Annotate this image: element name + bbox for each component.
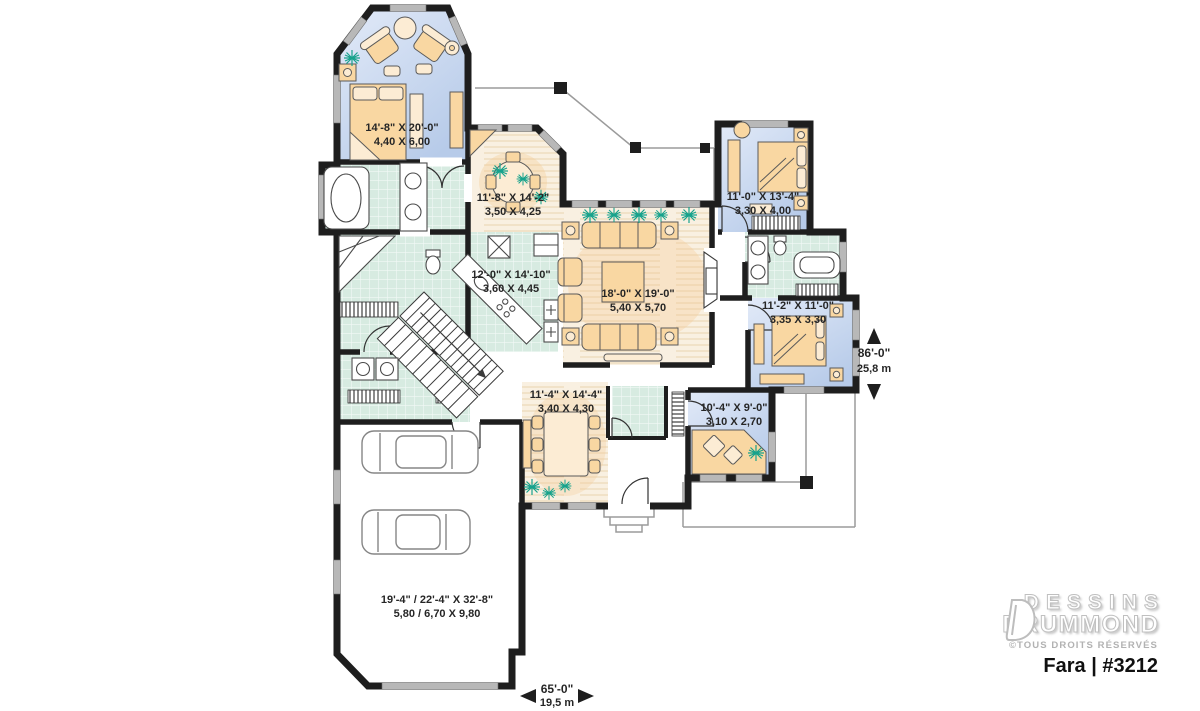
foyer-closet-floor [612, 386, 666, 438]
master-bedroom-dims-imperial: 14'-8" X 20'-0" [365, 122, 438, 134]
fireplace-icon [704, 248, 720, 312]
width-imperial: 65'-0" [541, 682, 574, 696]
breakfast-nook-dims-metric: 3,50 X 4,25 [485, 206, 541, 218]
office-dims-metric: 3,10 X 2,70 [706, 416, 762, 428]
brand-block: DESSINS DRUMMOND ©TOUS DROITS RÉSERVÉS F… [1002, 592, 1158, 678]
plan-model-number: Fara | #3212 [1002, 655, 1158, 678]
office-dims-imperial: 10'-4" X 9'-0" [700, 402, 767, 414]
garage-dims-imperial: 19'-4" / 22'-4" X 32'-8" [381, 594, 493, 606]
terrace-column [700, 143, 710, 153]
width-dimension: 65'-0" 19,5 m [520, 682, 594, 709]
living-room-dims-imperial: 18'-0" X 19'-0" [601, 288, 674, 300]
floor-plan-sheet: 14'-8" X 20'-0" 4,40 X 6,00 11'-8" X 14'… [0, 0, 1200, 711]
width-metric: 19,5 m [540, 697, 574, 709]
depth-dimension: 86'-0" 25,8 m [857, 328, 891, 400]
kitchen-dims-metric: 3,60 X 4,45 [483, 283, 539, 295]
drummond-d-logo-icon [1002, 592, 1038, 646]
arrow-up-icon [867, 328, 881, 344]
terrace-column [630, 142, 641, 153]
master-bedroom-dims-metric: 4,40 X 6,00 [374, 136, 430, 148]
depth-imperial: 86'-0" [858, 346, 891, 360]
car-icons [362, 431, 478, 554]
depth-metric: 25,8 m [857, 363, 891, 375]
bedroom2-dims-metric: 3,30 X 4,00 [735, 205, 791, 217]
porch-column [800, 476, 813, 489]
bedroom3-dims-imperial: 11'-2" X 11'-0" [762, 300, 834, 312]
kitchen-dims-imperial: 12'-0" X 14'-10" [471, 269, 550, 281]
breakfast-nook-dims-imperial: 11'-8" X 14'-2" [477, 192, 550, 204]
arrow-left-icon [520, 689, 536, 703]
bedroom2-dims-imperial: 11'-0" X 13'-4" [727, 191, 800, 203]
terrace-column [554, 82, 567, 94]
living-room-dims-metric: 5,40 X 5,70 [610, 302, 666, 314]
arrow-right-icon [578, 689, 594, 703]
garage-dims-metric: 5,80 / 6,70 X 9,80 [394, 608, 481, 620]
dining-furniture [523, 412, 600, 476]
bedroom3-dims-metric: 3,35 X 3,30 [770, 314, 826, 326]
dining-room-dims-metric: 3,40 X 4,30 [538, 403, 594, 415]
dining-room-dims-imperial: 11'-4" X 14'-4" [530, 389, 603, 401]
arrow-down-icon [867, 384, 881, 400]
